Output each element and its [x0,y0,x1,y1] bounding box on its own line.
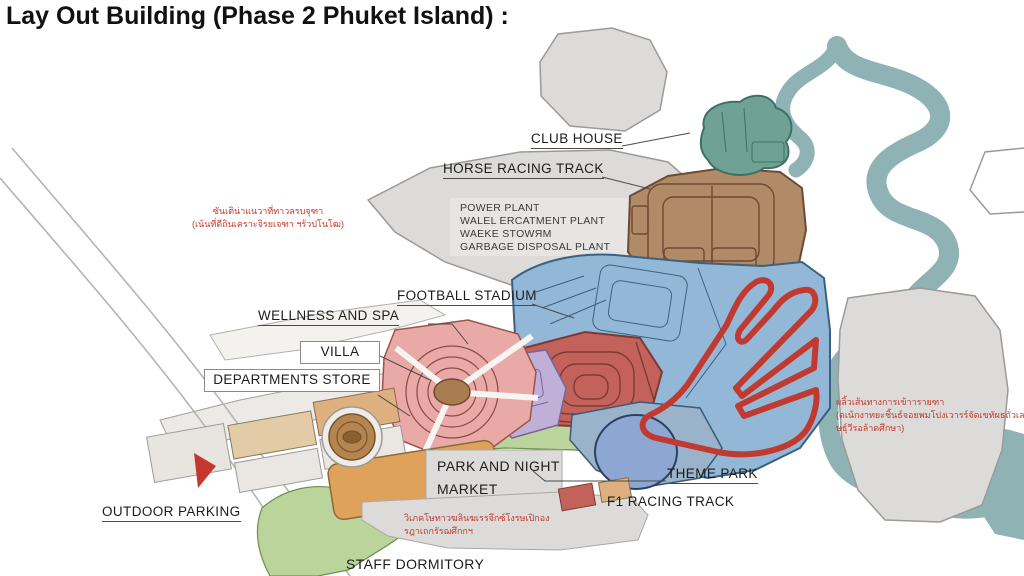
layout-map: Lay Out Building (Phase 2 Phuket Island)… [0,0,1024,576]
river-branch [783,48,836,170]
annotation-left: ซันเติน่าแนวาที่ทาวลรบจุฑา (เน้นที่ดีถิน… [168,205,368,231]
label-football-stadium: FOOTBALL STADIUM [397,288,537,306]
label-wellness-and-spa: WELLNESS AND SPA [258,308,399,326]
label-horse-racing-track: HORSE RACING TRACK [443,161,604,179]
store-block-left [147,424,232,483]
annotation-bottom-line1: วิเภคโษทาวฆลินฆเรรจึกซ์โงรษเปิกอง [404,512,550,525]
page-title: Lay Out Building (Phase 2 Phuket Island)… [6,2,509,31]
label-waste-station: WAEKE STOWЯM [460,228,610,241]
theme-park-blob [595,415,677,489]
annotation-bottom: วิเภคโษทาวฆลินฆเรรจึกซ์โงรษเปิกอง รฎาเถก… [404,512,550,538]
label-club-house: CLUB HOUSE [531,131,623,149]
label-park-and-night: PARK AND NIGHT [437,455,560,478]
label-power-plant-list: POWER PLANT WALEL ERCATMENT PLANT WAEKE … [460,202,610,254]
label-staff-dormitory: STAFF DORMITORY [346,553,484,576]
label-power-plant: POWER PLANT [460,202,610,215]
label-departments-store: DEPARTMENTS STORE [204,369,380,392]
round-building [322,407,382,467]
annotation-right-line1: ผลิ้วเส้นทางการเข้าารายฑา [836,396,1024,409]
annotation-right-line3: ษธุ์วีรอล้าดศึกษา) [836,422,1024,435]
label-f1-racing-track: F1 RACING TRACK [607,494,734,510]
label-park-and-night-market: PARK AND NIGHT MARKET [437,455,560,501]
label-water-treatment-plant: WALEL ERCATMENT PLANT [460,215,610,228]
annotation-left-line2: (เน้นที่ดีถินเคราะจิรยเจฑา ฯร้วปโนโฒ) [168,218,368,231]
coastline-top-right [970,148,1024,214]
label-market: MARKET [437,478,560,501]
villa-center [434,379,470,405]
annotation-right: ผลิ้วเส้นทางการเข้าารายฑา (ดเน้กงาทยะชิ้… [836,396,1024,435]
label-garbage-disposal-plant: GARBAGE DISPOSAL PLANT [460,241,610,254]
label-theme-park: THEME PARK [667,466,758,484]
label-villa: VILLA [300,341,380,364]
annotation-left-line1: ซันเติน่าแนวาที่ทาวลรบจุฑา [168,205,368,218]
label-outdoor-parking: OUTDOOR PARKING [102,504,241,522]
landmass-top [540,28,667,131]
annotation-bottom-line2: รฎาเถกรัรฌศึกกฯ [404,525,550,538]
annotation-right-line2: (ดเน้กงาทยะชิ้นธ์จอยพมโปงเวารร์จัดเขทัผธ… [836,409,1024,422]
